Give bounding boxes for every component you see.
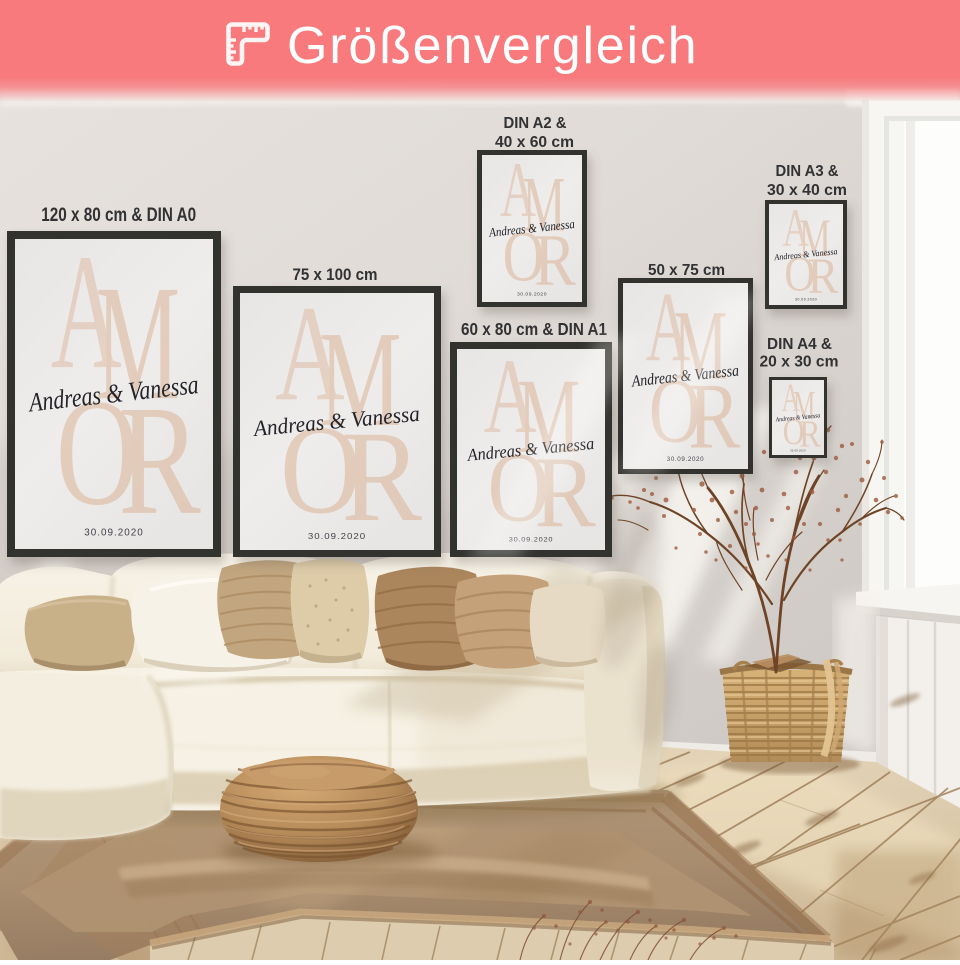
svg-text:50 x 75 cm: 50 x 75 cm bbox=[648, 262, 725, 279]
svg-text:DIN A2 &: DIN A2 & bbox=[504, 115, 567, 132]
svg-text:120 x 80 cm & DIN A0: 120 x 80 cm & DIN A0 bbox=[41, 204, 196, 226]
svg-text:75 x 100 cm: 75 x 100 cm bbox=[293, 265, 378, 284]
svg-text:30 x 40 cm: 30 x 40 cm bbox=[767, 182, 847, 199]
svg-text:40 x 60 cm: 40 x 60 cm bbox=[495, 134, 574, 151]
svg-text:DIN A3 &: DIN A3 & bbox=[776, 163, 839, 180]
svg-text:20 x 30 cm: 20 x 30 cm bbox=[760, 354, 839, 371]
svg-text:60 x 80 cm & DIN A1: 60 x 80 cm & DIN A1 bbox=[461, 319, 607, 339]
svg-text:DIN A4 &: DIN A4 & bbox=[767, 336, 832, 353]
